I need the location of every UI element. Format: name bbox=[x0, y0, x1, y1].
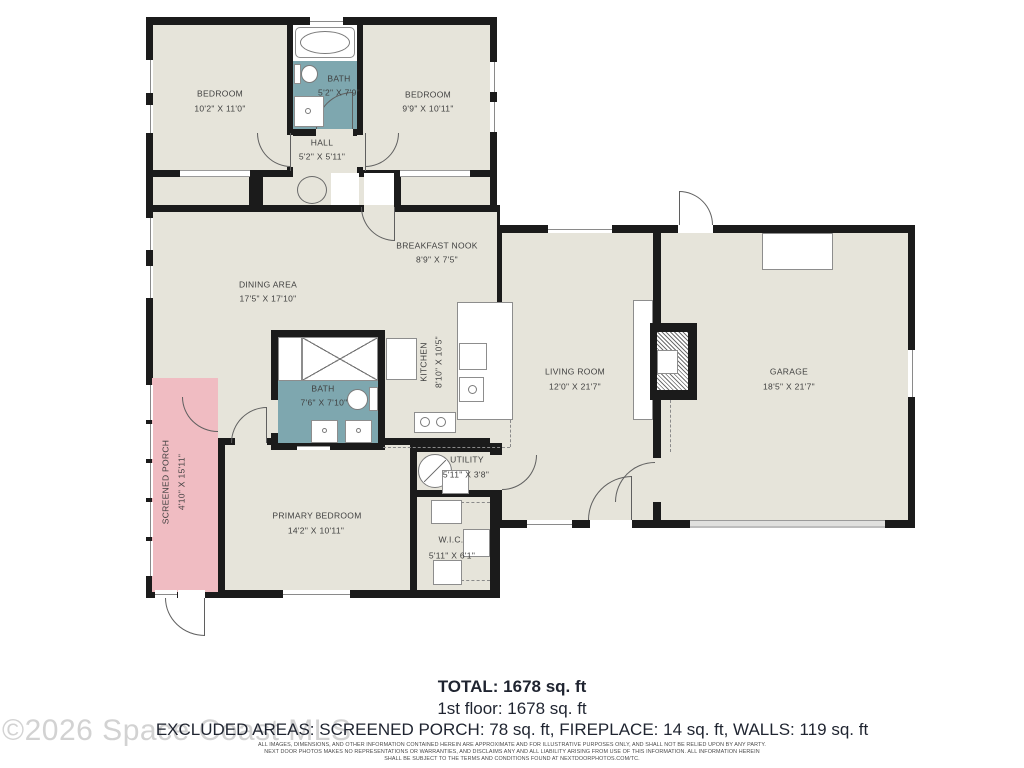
room-label-primary-bedroom: PRIMARY BEDROOM bbox=[272, 512, 361, 521]
room-dims-garage: 18'5" X 21'7" bbox=[763, 383, 815, 392]
room-dims-wic: 5'11" X 6'1" bbox=[429, 552, 475, 561]
garage-dashed-line bbox=[670, 400, 671, 452]
closet-slider-door bbox=[400, 170, 470, 177]
disclaimer-text: ALL IMAGES, DIMENSIONS, AND OTHER INFORM… bbox=[0, 742, 1024, 763]
counter-overhang-dashed bbox=[510, 420, 511, 447]
porch-screen-window bbox=[146, 463, 153, 498]
door-arc-garage-side-entry bbox=[679, 191, 713, 225]
door-leaf bbox=[394, 207, 395, 241]
door-leaf bbox=[352, 92, 353, 129]
counter-overhang-dashed bbox=[383, 447, 510, 448]
window bbox=[548, 225, 612, 233]
window bbox=[146, 266, 153, 298]
room-dims-bedroom-1: 10'2" X 11'0" bbox=[194, 105, 245, 114]
room-dims-hall: 5'2" X 5'11" bbox=[299, 153, 345, 162]
toilet-bowl bbox=[347, 389, 368, 410]
garage-vehicle-door bbox=[690, 520, 885, 528]
room-dims-breakfast-nook: 8'9" X 7'5" bbox=[416, 256, 458, 265]
sink-drain bbox=[356, 428, 361, 433]
door-gap bbox=[357, 135, 363, 167]
disclaimer-line-2: NEXT DOOR PHOTOS MAKES NO REPRESENTATION… bbox=[0, 749, 1024, 756]
room-dims-kitchen: 8'10" X 10'5" bbox=[435, 336, 444, 388]
hall-strip-left bbox=[263, 177, 293, 205]
toilet-bowl bbox=[301, 65, 318, 83]
door-leaf bbox=[204, 598, 205, 636]
toilet-tank bbox=[294, 64, 301, 84]
wic-shelf bbox=[433, 560, 462, 585]
room-dims-bath-2: 7'6" X 7'10" bbox=[301, 399, 348, 408]
door-gap bbox=[678, 225, 713, 233]
porch-screen-window bbox=[146, 502, 153, 537]
toilet-tank bbox=[369, 387, 378, 411]
window bbox=[908, 350, 915, 397]
door-leaf bbox=[679, 191, 680, 225]
closet-slider-door bbox=[180, 170, 250, 177]
linen-closet bbox=[278, 337, 302, 381]
wic-shelf-dashed bbox=[461, 580, 490, 581]
wic-shelf-dashed bbox=[461, 502, 490, 503]
door-leaf bbox=[365, 133, 366, 171]
sink-drain bbox=[322, 428, 327, 433]
room-label-living-room: LIVING ROOM bbox=[545, 368, 605, 377]
door-gap bbox=[590, 520, 632, 528]
garage-storage-nook bbox=[762, 233, 833, 270]
door-gap bbox=[178, 590, 205, 598]
room-dims-bedroom-2: 9'9" X 10'11" bbox=[402, 105, 453, 114]
first-floor-text: 1st floor: 1678 sq. ft bbox=[0, 699, 1024, 719]
stove-burner bbox=[436, 417, 446, 427]
closet-right bbox=[401, 177, 490, 205]
room-dims-bath-1: 5'2" X 7'9" bbox=[318, 89, 360, 98]
refrigerator bbox=[386, 338, 417, 380]
porch-screen-window bbox=[146, 541, 153, 576]
excluded-areas-text: EXCLUDED AREAS: SCREENED PORCH: 78 sq. f… bbox=[0, 720, 1024, 740]
door-gap bbox=[490, 455, 502, 490]
wall-vent bbox=[297, 446, 330, 450]
door-leaf bbox=[266, 407, 267, 443]
disclaimer-line-1: ALL IMAGES, DIMENSIONS, AND OTHER INFORM… bbox=[0, 742, 1024, 749]
bifold-closet-door bbox=[297, 176, 327, 204]
door-gap bbox=[331, 173, 359, 205]
window bbox=[146, 60, 153, 93]
window bbox=[527, 520, 572, 528]
room-label-bath-1: BATH bbox=[327, 75, 350, 84]
room-dims-dining-area: 17'5" X 17'10" bbox=[240, 295, 297, 304]
floor-plan-page: BEDROOM 10'2" X 11'0" BATH 5'2" X 7'9" B… bbox=[0, 0, 1024, 768]
room-dims-primary-bedroom: 14'2" X 10'11" bbox=[288, 527, 344, 536]
room-label-breakfast-nook: BREAKFAST NOOK bbox=[396, 242, 478, 251]
sink-drain bbox=[305, 108, 311, 114]
disclaimer-line-3: SHALL BE SUBJECT TO THE TERMS AND CONDIT… bbox=[0, 756, 1024, 763]
shower bbox=[302, 337, 378, 381]
door-arc-porch-exterior bbox=[165, 598, 205, 636]
window bbox=[155, 590, 177, 598]
door-gap bbox=[218, 397, 225, 428]
room-label-garage: GARAGE bbox=[770, 368, 808, 377]
dishwasher-knob bbox=[468, 385, 477, 394]
porch-screen-window bbox=[146, 385, 153, 420]
room-label-screened-porch: SCREENED PORCH bbox=[162, 440, 171, 525]
room-dims-screened-porch: 4'10" X 15'11" bbox=[178, 454, 187, 510]
window bbox=[310, 17, 343, 25]
window bbox=[490, 62, 497, 92]
room-garage bbox=[661, 233, 908, 520]
door-leaf bbox=[290, 133, 291, 171]
door-gap bbox=[364, 173, 394, 205]
stove-burner bbox=[420, 417, 430, 427]
porch-screen-window bbox=[146, 424, 153, 459]
room-label-bath-2: BATH bbox=[311, 385, 334, 394]
kitchen-sink bbox=[459, 343, 487, 370]
bathtub-basin bbox=[300, 31, 350, 54]
room-dims-living-room: 12'0" X 21'7" bbox=[549, 383, 601, 392]
room-label-bedroom-1: BEDROOM bbox=[197, 90, 243, 99]
room-label-bedroom-2: BEDROOM bbox=[405, 91, 451, 100]
room-label-hall: HALL bbox=[311, 139, 333, 148]
window bbox=[146, 218, 153, 250]
window bbox=[490, 102, 497, 132]
window bbox=[146, 105, 153, 133]
door-gap bbox=[271, 400, 278, 433]
room-dims-utility: 5'11" X 3'8" bbox=[443, 471, 489, 480]
room-label-kitchen: KITCHEN bbox=[420, 342, 429, 381]
room-label-dining-area: DINING AREA bbox=[239, 281, 297, 290]
fireplace-firebox bbox=[657, 350, 678, 374]
room-label-wic: W.I.C. bbox=[439, 536, 464, 545]
total-area-text: TOTAL: 1678 sq. ft bbox=[0, 677, 1024, 697]
wic-shelf bbox=[431, 500, 462, 524]
window bbox=[283, 590, 350, 598]
closet-left bbox=[153, 177, 249, 205]
room-label-utility: UTILITY bbox=[450, 456, 484, 465]
door-gap bbox=[316, 129, 353, 136]
